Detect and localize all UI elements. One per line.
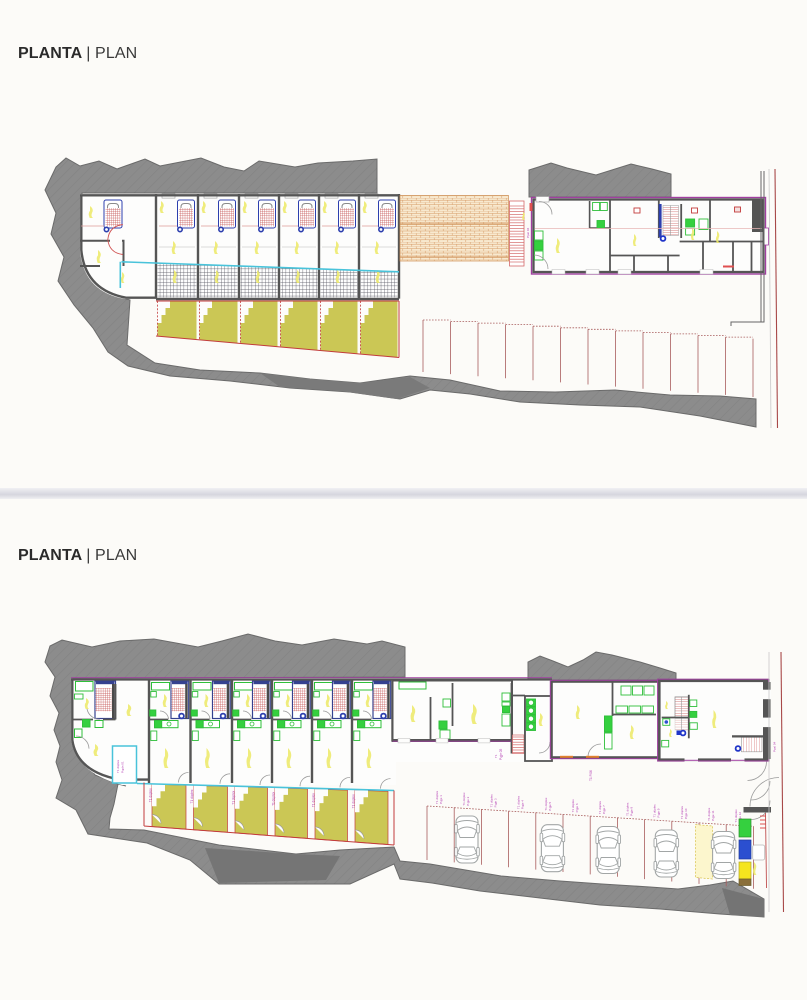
svg-text:P.gje 6: P.gje 6 (575, 803, 579, 812)
svg-text:P.gje 11: P.gje 11 (711, 810, 715, 821)
svg-text:P.gje 05: P.gje 05 (499, 748, 503, 760)
svg-text:T1 dúplex: T1 dúplex (272, 792, 276, 806)
svg-text:P.gje 1: P.gje 1 (439, 795, 443, 804)
svg-text:P.gje 5: P.gje 5 (548, 801, 552, 810)
svg-text:P.gje 2: P.gje 2 (466, 796, 470, 805)
svg-text:P.gje 10: P.gje 10 (684, 808, 688, 819)
svg-text:T1 dúplex: T1 dúplex (116, 759, 120, 773)
svg-text:T1 dúplex: T1 dúplex (190, 789, 194, 803)
svg-text:P.gdn 01: P.gdn 01 (121, 761, 125, 773)
svg-text:P.gje 8: P.gje 8 (629, 807, 633, 816)
svg-text:Ppal 04: Ppal 04 (773, 741, 777, 752)
svg-text:P.gje 3: P.gje 3 (493, 798, 497, 807)
svg-text:T1 dúplex: T1 dúplex (352, 794, 356, 808)
svg-text:Ppal 04: Ppal 04 (526, 227, 530, 238)
svg-text:T1 P.06: T1 P.06 (589, 770, 593, 781)
svg-text:P.gje 7: P.gje 7 (602, 805, 606, 814)
svg-text:T1 dúplex: T1 dúplex (149, 788, 153, 802)
svg-text:T1 dúplex: T1 dúplex (232, 790, 236, 804)
svg-text:T1: T1 (494, 754, 498, 758)
svg-text:P.gje 4: P.gje 4 (521, 800, 525, 809)
svg-text:P.gje 9: P.gje 9 (657, 808, 661, 817)
svg-text:T1 dúplex: T1 dúplex (312, 793, 316, 807)
